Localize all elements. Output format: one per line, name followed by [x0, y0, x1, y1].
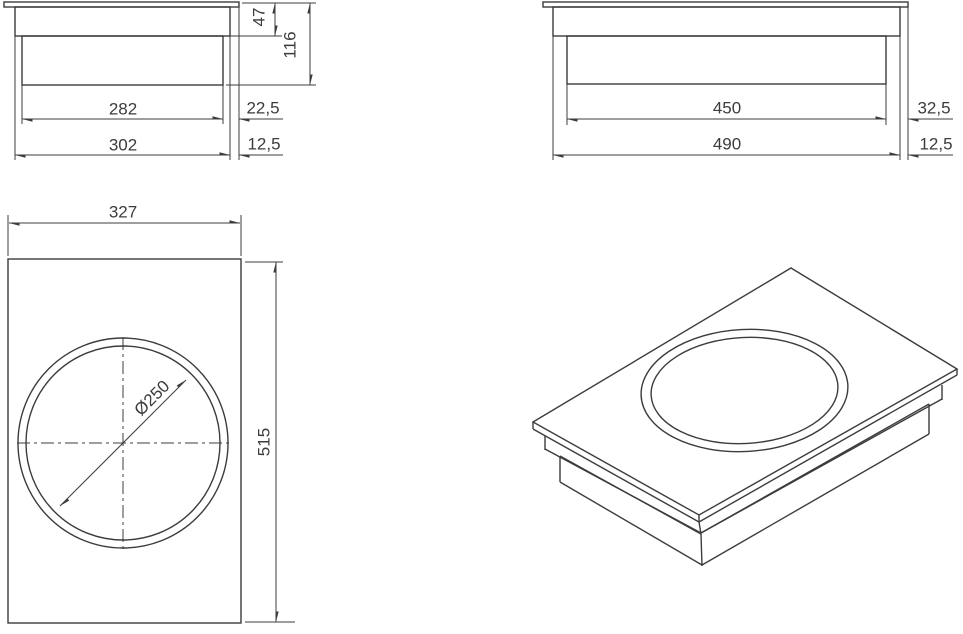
technical-drawing-page: 47 116 282 22,5 302 12,5 450 32,5 490 12…	[0, 0, 963, 634]
front-section-view: 47 116 282 22,5 302 12,5	[4, 2, 316, 160]
glass-bottom-edge	[533, 429, 699, 522]
dim-label-450: 450	[713, 99, 741, 118]
body-box-outline	[567, 36, 886, 84]
glass-top-face	[533, 268, 957, 515]
body-bottom-edge	[702, 434, 929, 565]
side-section-view: 450 32,5 490 12,5	[543, 2, 953, 160]
dim-label-282: 282	[109, 100, 137, 119]
dim-label-515: 515	[255, 428, 274, 456]
dim-label-diameter-250: Ø250	[131, 377, 174, 420]
top-view: 327 515 Ø250	[8, 203, 295, 624]
dim-label-12-5: 12,5	[247, 135, 280, 154]
technical-drawing-canvas: 47 116 282 22,5 302 12,5 450 32,5 490 12…	[0, 0, 963, 634]
glass-top-outline	[543, 2, 908, 7]
body-box-outline	[22, 36, 223, 85]
dim-label-327: 327	[109, 203, 137, 222]
dim-label-12-5: 12,5	[919, 135, 952, 154]
flange-box-outline	[15, 7, 230, 36]
dim-label-32-5: 32,5	[917, 99, 950, 118]
cooking-zone-outer-ring	[638, 324, 851, 457]
flange-box-outline	[553, 7, 900, 36]
glass-top-outline	[4, 2, 239, 7]
dim-label-116: 116	[281, 31, 300, 58]
dim-label-47: 47	[250, 8, 269, 27]
body-corner-edge	[701, 534, 702, 566]
isometric-view	[533, 268, 957, 566]
cooking-zone-inner-ring	[648, 333, 840, 449]
dim-label-22-5: 22,5	[246, 99, 279, 118]
dim-label-490: 490	[713, 135, 741, 154]
dim-label-302: 302	[109, 136, 137, 155]
glass-bottom-edge	[699, 375, 957, 522]
